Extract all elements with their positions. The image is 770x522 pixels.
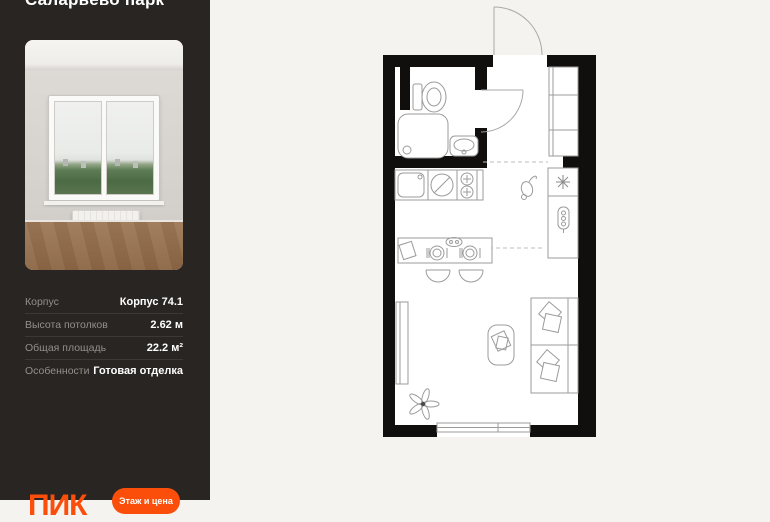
pik-logo[interactable]: ПИК <box>28 491 86 521</box>
apartment-photo <box>25 40 183 270</box>
washbasin <box>450 136 478 156</box>
window-pane-left <box>54 101 102 195</box>
property-sidebar: Саларьево парк Корпус Корпус 74.1 Высота… <box>0 0 210 500</box>
window <box>437 423 530 432</box>
spec-row-features: Особенности Готовая отделка <box>25 360 183 382</box>
shower-cabin <box>398 114 448 158</box>
spec-value: 2.62 м <box>150 319 183 331</box>
spec-value: Готовая отделка <box>93 365 183 377</box>
water-heater <box>548 196 578 258</box>
hallway-closet <box>549 67 578 156</box>
skyline <box>115 159 120 166</box>
fridge <box>548 168 578 196</box>
bar-table <box>398 238 492 264</box>
spec-label: Корпус <box>25 296 59 308</box>
entrance-door <box>494 7 542 55</box>
project-title: Саларьево парк <box>25 0 164 10</box>
bed <box>531 298 578 393</box>
toilet <box>413 82 446 112</box>
skyline <box>63 159 68 166</box>
spec-label: Особенности <box>25 365 89 377</box>
floor-price-button[interactable]: Этаж и цена <box>112 488 180 514</box>
spec-row-korpus: Корпус Корпус 74.1 <box>25 291 183 314</box>
photo-floor <box>25 220 183 270</box>
spec-label: Общая площадь <box>25 342 106 354</box>
window-sill <box>44 201 164 205</box>
photo-window <box>48 95 160 201</box>
spec-row-total-area: Общая площадь 22.2 м² <box>25 337 183 360</box>
spec-label: Высота потолков <box>25 319 108 331</box>
window-pane-right <box>106 101 154 195</box>
armchair <box>488 325 514 365</box>
spec-value: Корпус 74.1 <box>120 296 183 308</box>
wardrobe <box>396 302 408 384</box>
kitchen-sink <box>398 173 424 197</box>
spec-value: 22.2 м² <box>147 342 183 354</box>
floor-plan <box>370 0 610 450</box>
photo-ceiling <box>25 40 183 70</box>
kitchen-counter <box>395 170 483 200</box>
spec-list: Корпус Корпус 74.1 Высота потолков 2.62 … <box>25 291 183 382</box>
fridge-snowflake-icon <box>556 175 570 189</box>
spec-row-ceiling-height: Высота потолков 2.62 м <box>25 314 183 337</box>
